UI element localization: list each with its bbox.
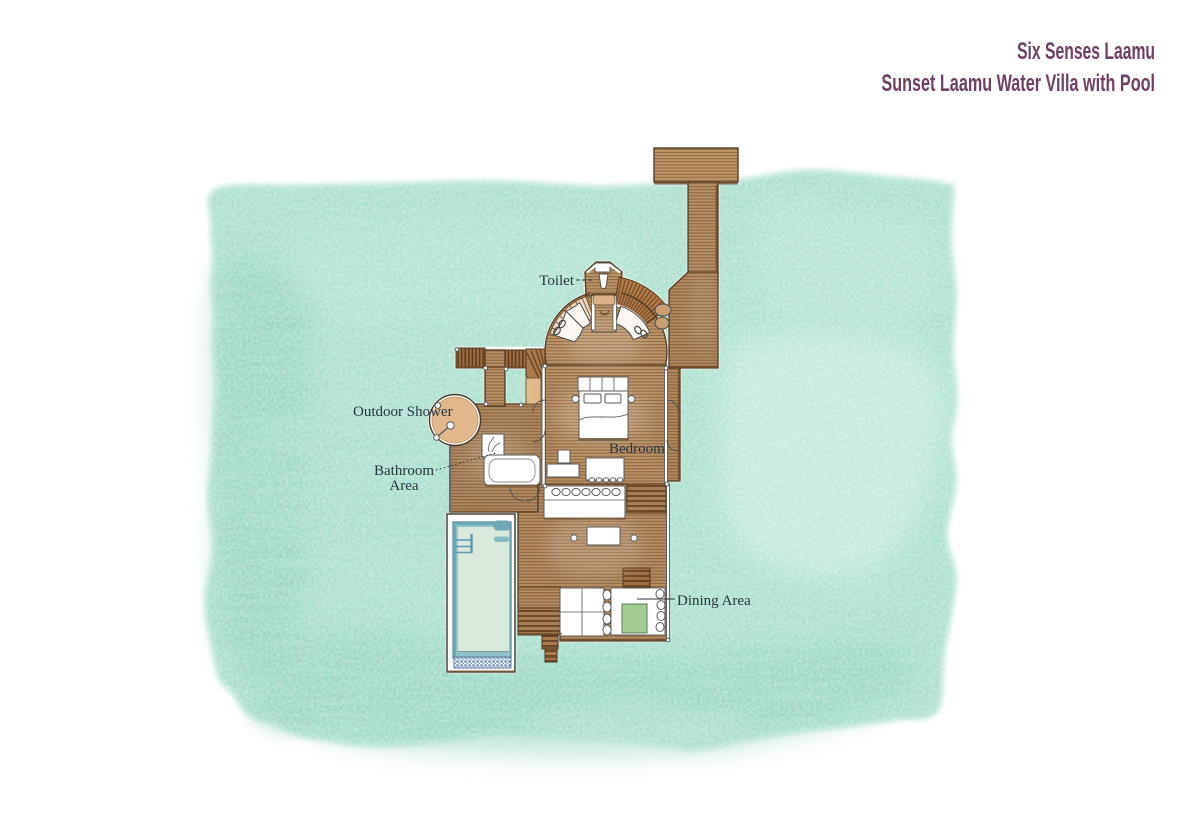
svg-text:Six Senses Laamu: Six Senses Laamu	[1017, 39, 1155, 65]
svg-text:Bathroom: Bathroom	[374, 463, 434, 479]
svg-text:Dining Area: Dining Area	[677, 593, 751, 609]
svg-text:Bedroom: Bedroom	[609, 441, 665, 457]
svg-text:Sunset Laamu Water Villa with: Sunset Laamu Water Villa with Pool	[881, 70, 1155, 97]
svg-text:Outdoor Shower: Outdoor Shower	[353, 404, 453, 420]
svg-text:Toilet: Toilet	[539, 273, 575, 289]
svg-text:Area: Area	[389, 478, 418, 494]
